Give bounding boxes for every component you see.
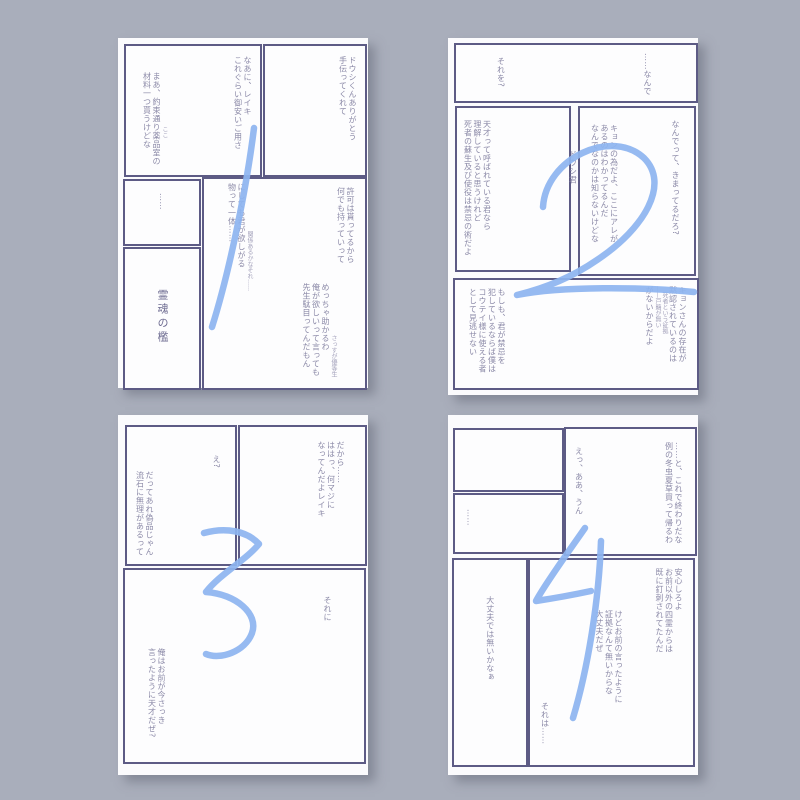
gutter-text: ドウシ君: [568, 150, 578, 184]
page4-panel-mid-left: ……: [453, 493, 564, 554]
speech-block: もしも、君が禁忌を 犯しているならば僕は コウテイ様に使える者 として見逃せない: [468, 288, 506, 373]
manga-collage: { "colors": { "background": "#a9aebb", "…: [0, 0, 800, 800]
page1-panel-top-right: ドウシくんありがとう 手伝ってくれて: [263, 44, 367, 177]
dialogue-line: あるのはわかってるんだ: [600, 124, 610, 243]
speech-block: だから…… ははっ、何マジに なってんだよレイキ: [317, 441, 346, 518]
speech-block: ……と、これで終わりだな 例の冬虫夏草買って帰るわ: [664, 442, 683, 544]
page1-panel-main: 許可は貰ってるから 何でも持っていって 関係あるかなそれ…… にしても君が欲しが…: [202, 177, 367, 390]
speech-block: ……なんで: [643, 53, 653, 96]
dialogue-line: 何でも持っていって: [336, 187, 346, 264]
speech-block: え?: [212, 455, 222, 468]
page4-panel-bottom-right: 安心しろよ お前以外の四霊からは 既に釘刺されてたんだ けどお前の言ったように …: [528, 558, 695, 767]
dialogue-line: なってんだよレイキ: [317, 441, 327, 518]
dialogue-line: え?: [212, 455, 222, 468]
speech-block: なんでって、きまってるだろ?: [671, 120, 681, 235]
page3-panel-bottom: それに 俺はお前が今さっき 言ったように天才だぜ?: [123, 568, 366, 764]
page4-panel-top-right: ……と、これで終わりだな 例の冬虫夏草買って帰るわ えっ、ああ、うん: [564, 427, 697, 556]
dialogue-line: ……なんで: [643, 53, 653, 96]
speech-block: 俺はお前が今さっき 言ったように天才だぜ?: [147, 648, 166, 738]
speech-block: それを?: [496, 57, 506, 87]
speech-block: 天才って呼ばれている君なら 理解していると思うけれど 死者の蘇生及び使役は禁忌の…: [463, 120, 492, 256]
dialogue-line: 俺はお前が今さっき: [157, 648, 167, 738]
dialogue-line: 理解していると思うけれど: [473, 120, 483, 256]
page3-panel-top-left: え? だってあれ偽品じゃん 流石に無理があるって: [125, 425, 237, 566]
dialogue-line: これぐらい御安いご用さ: [233, 56, 243, 150]
dialogue-line: 既に釘刺されてたんだ: [655, 568, 665, 653]
dialogue-line: 黙認されているのは: [668, 286, 678, 363]
dialogue-line: キョンの為だよ、ここにアレが: [609, 124, 619, 243]
dialogue-line: 材料一つ貰うけどな: [142, 72, 152, 166]
dialogue-line: 犯しているならば僕は: [487, 288, 497, 373]
dialogue-line: もしも、君が禁忌を: [497, 288, 507, 373]
dialogue-line: 先生駄目ってんだもん: [302, 283, 312, 377]
dialogue-line: にしても君が欲しがる: [237, 183, 247, 291]
page4-panel-bottom-left: 大丈夫では無いかなぁ: [452, 558, 528, 767]
speech-block: キョンさんの存在が 黙認されているのは 死者という証拠 ——戸籍が無い がないか…: [645, 286, 688, 363]
speech-block: ……: [465, 509, 475, 526]
aside-note: ——戸籍が無い: [654, 286, 661, 363]
page2-panel-mid-left: 天才って呼ばれている君なら 理解していると思うけれど 死者の蘇生及び使役は禁忌の…: [455, 106, 571, 272]
dialogue-line: 流石に無理があるって: [135, 471, 145, 556]
page1-panel-top-left: なあに、レイキ これぐらい御安いご用さ ここ まあ、約束通り薬品室の 材料一つ貰…: [124, 44, 262, 177]
story-title: 霊魂の檻: [155, 289, 169, 345]
dialogue-line: ……: [157, 193, 167, 210]
speech-block: 大丈夫では無いかなぁ: [485, 596, 495, 681]
dialogue-line: 物って一体……: [227, 183, 237, 291]
speech-block: ……: [157, 193, 167, 210]
dialogue-line: ははっ、何マジに: [326, 441, 336, 518]
gutter-note: ドウシ君: [568, 150, 578, 184]
dialogue-line: 許可は貰ってるから: [346, 187, 356, 264]
speech-block: ドウシくんありがとう 手伝ってくれて: [338, 56, 357, 141]
dialogue-line: だってあれ偽品じゃん: [145, 471, 155, 556]
dialogue-line: 俺が欲しいって言っても: [311, 283, 321, 377]
dialogue-line: 死者の蘇生及び使役は禁忌の術だよ: [463, 120, 473, 256]
dialogue-line: めっちゃ助かるわ: [321, 283, 331, 377]
speech-block: さっすが優等生 めっちゃ助かるわ 俺が欲しいって言っても 先生駄目ってんだもん: [302, 283, 338, 377]
dialogue-line: として見逃せない: [468, 288, 478, 373]
dialogue-line: 証拠なんて無いからな: [604, 610, 614, 704]
dialogue-line: なんでって、きまってるだろ?: [671, 120, 681, 235]
dialogue-line: それは……: [540, 702, 550, 745]
page-1: なあに、レイキ これぐらい御安いご用さ ここ まあ、約束通り薬品室の 材料一つ貰…: [118, 38, 368, 388]
dialogue-line: 言ったように天才だぜ?: [147, 648, 157, 738]
speech-block: キョンの為だよ、ここにアレが あるのはわかってるんだ なんでなのかは知らないけど…: [590, 124, 619, 243]
dialogue-line: だから……: [336, 441, 346, 518]
dialogue-line: ドウシくんありがとう: [348, 56, 358, 141]
page-2: ……なんで それを? 天才って呼ばれている君なら 理解していると思うけれど 死者…: [448, 38, 698, 395]
dialogue-line: お前以外の四霊からは: [664, 568, 674, 653]
speech-block: なあに、レイキ これぐらい御安いご用さ: [233, 56, 252, 150]
dialogue-line: なんでなのかは知らないけどな: [590, 124, 600, 243]
title-text: 霊魂の檻: [155, 289, 169, 345]
aside-note: さっすが優等生: [330, 283, 337, 377]
dialogue-line: 天才って呼ばれている君なら: [482, 120, 492, 256]
page-3: え? だってあれ偽品じゃん 流石に無理があるって だから…… ははっ、何マジに …: [118, 415, 368, 775]
dialogue-line: がないからだよ: [645, 286, 655, 363]
aside-note: ここ: [161, 72, 168, 166]
aside-note: 関係あるかなそれ……: [246, 183, 253, 291]
dialogue-line: コウテイ様に使える者: [478, 288, 488, 373]
speech-block: それは……: [540, 702, 550, 745]
page1-panel-mid-left: ……: [123, 179, 201, 246]
dialogue-line: それを?: [496, 57, 506, 87]
page4-panel-top-left: [453, 428, 564, 492]
speech-block: だってあれ偽品じゃん 流石に無理があるって: [135, 471, 154, 556]
dialogue-line: なあに、レイキ: [243, 56, 253, 150]
dialogue-line: 安心しろよ: [674, 568, 684, 653]
speech-block: 安心しろよ お前以外の四霊からは 既に釘刺されてたんだ: [655, 568, 684, 653]
aside-note: 死者という証拠: [661, 286, 668, 363]
dialogue-line: 手伝ってくれて: [338, 56, 348, 141]
dialogue-line: 例の冬虫夏草買って帰るわ: [664, 442, 674, 544]
dialogue-line: けどお前の言ったように: [614, 610, 624, 704]
dialogue-line: まあ、約束通り薬品室の: [152, 72, 162, 166]
page2-panel-top: ……なんで それを?: [454, 43, 698, 103]
dialogue-line: それに: [323, 596, 333, 622]
page2-panel-mid-right: なんでって、きまってるだろ? キョンの為だよ、ここにアレが あるのはわかってるん…: [578, 106, 696, 276]
dialogue-line: 大丈夫では無いかなぁ: [485, 596, 495, 681]
dialogue-line: ……と、これで終わりだな: [674, 442, 684, 544]
dialogue-line: 大丈夫だぜ: [595, 610, 605, 704]
speech-block: 許可は貰ってるから 何でも持っていって: [336, 187, 355, 264]
dialogue-line: キョンさんの存在が: [678, 286, 688, 363]
dialogue-line: えっ、ああ、うん: [574, 447, 584, 515]
speech-block: それに: [323, 596, 333, 622]
page3-panel-top-right: だから…… ははっ、何マジに なってんだよレイキ: [238, 425, 367, 566]
speech-block: 関係あるかなそれ…… にしても君が欲しがる 物って一体……: [227, 183, 253, 291]
page2-panel-bottom: キョンさんの存在が 黙認されているのは 死者という証拠 ——戸籍が無い がないか…: [453, 278, 699, 390]
page1-panel-title: 霊魂の檻: [123, 247, 201, 390]
page-4: …… ……と、これで終わりだな 例の冬虫夏草買って帰るわ えっ、ああ、うん 大丈…: [448, 415, 698, 775]
speech-block: えっ、ああ、うん: [574, 447, 584, 515]
dialogue-line: ……: [465, 509, 475, 526]
speech-block: けどお前の言ったように 証拠なんて無いからな 大丈夫だぜ: [595, 610, 624, 704]
speech-block: ここ まあ、約束通り薬品室の 材料一つ貰うけどな: [142, 72, 168, 166]
